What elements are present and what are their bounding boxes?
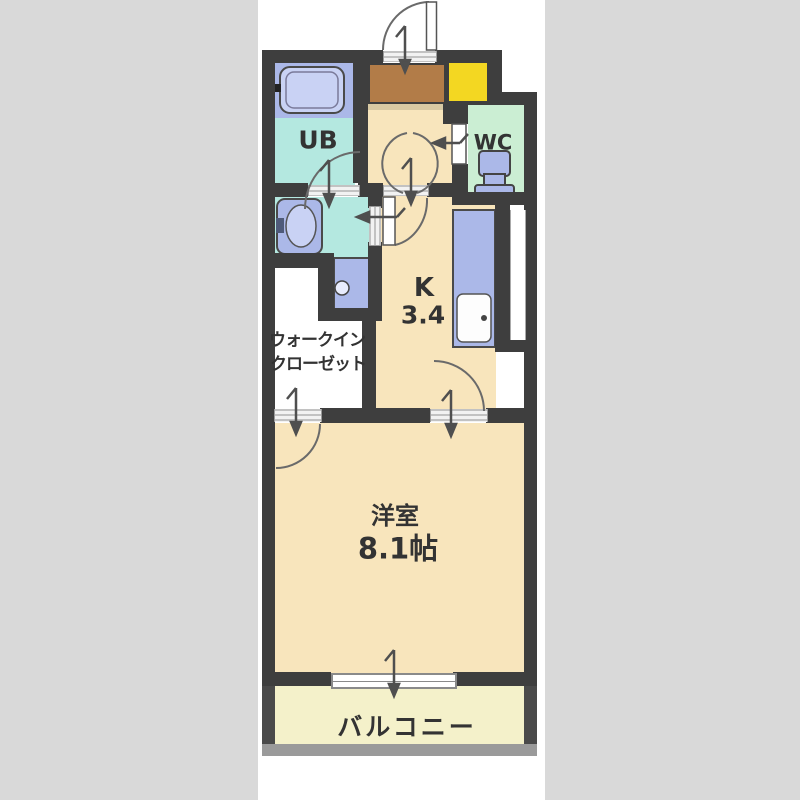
label-wc: WC	[474, 133, 513, 154]
wall	[452, 103, 468, 124]
bath-door-threshold	[308, 185, 360, 196]
wall	[435, 50, 502, 63]
closet-door-threshold	[274, 409, 322, 422]
service-recess	[510, 210, 526, 340]
label-western-room: 洋室	[371, 504, 419, 528]
kitchen-door-threshold	[383, 185, 429, 196]
entrance-threshold	[383, 51, 437, 62]
label-closet-line2: クローゼット	[270, 357, 366, 374]
wall	[489, 63, 502, 105]
label-kitchen-size: 3.4	[401, 303, 445, 328]
balcony-rail-right	[524, 686, 537, 746]
bathtub-zone	[275, 63, 355, 118]
washroom-sliding-door	[369, 206, 381, 246]
label-western-room-size: 8.1帖	[358, 535, 438, 564]
washer-nook	[334, 254, 370, 310]
label-kitchen: K	[414, 275, 434, 301]
wall	[524, 92, 537, 686]
label-unit-bath: UB	[298, 128, 337, 153]
wall	[353, 50, 368, 183]
wall	[495, 340, 524, 352]
wall	[318, 253, 334, 321]
room-closet-upper	[275, 267, 320, 319]
balcony-rail-bottom	[262, 744, 537, 756]
wall	[358, 183, 383, 197]
wall	[495, 205, 510, 348]
entrance-genkan	[368, 63, 446, 104]
wall	[368, 242, 382, 321]
room-washroom	[275, 197, 370, 254]
label-closet-line1: ウォークイン	[269, 333, 365, 350]
label-balcony: バルコニー	[337, 715, 477, 740]
floor-plan-canvas: UB WC K 3.4 ウォークイン クローゼット 洋室 8.1帖 バルコニー	[0, 0, 800, 800]
balcony-rail-left	[262, 686, 275, 746]
wc-door-opening	[452, 124, 468, 164]
sliding-window	[331, 673, 457, 689]
room-door-threshold	[430, 409, 488, 422]
wall	[320, 408, 430, 423]
wall	[452, 164, 468, 202]
